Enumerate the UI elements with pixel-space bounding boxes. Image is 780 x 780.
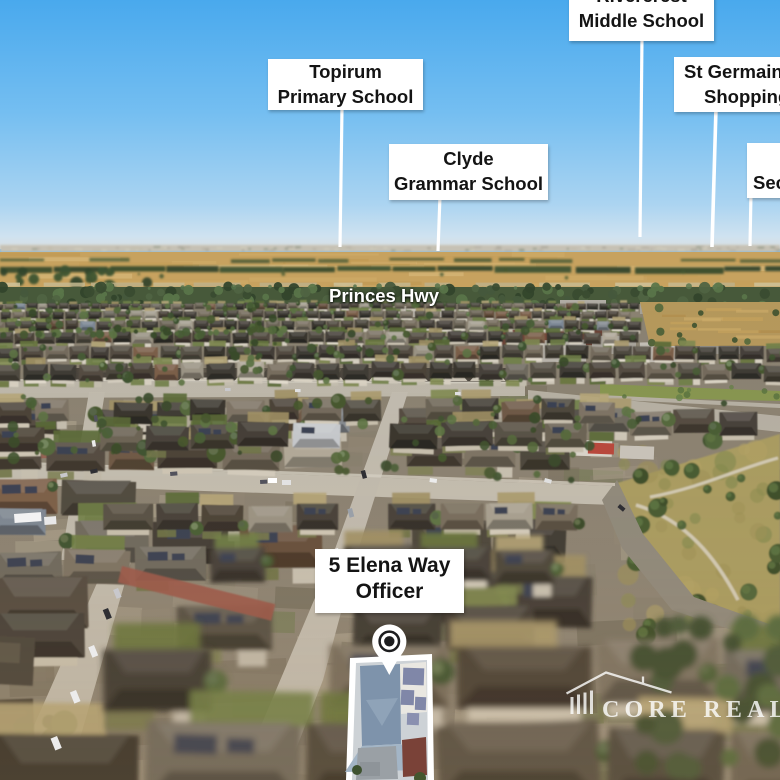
svg-text:CORE REALTY: CORE REALTY xyxy=(602,697,780,723)
